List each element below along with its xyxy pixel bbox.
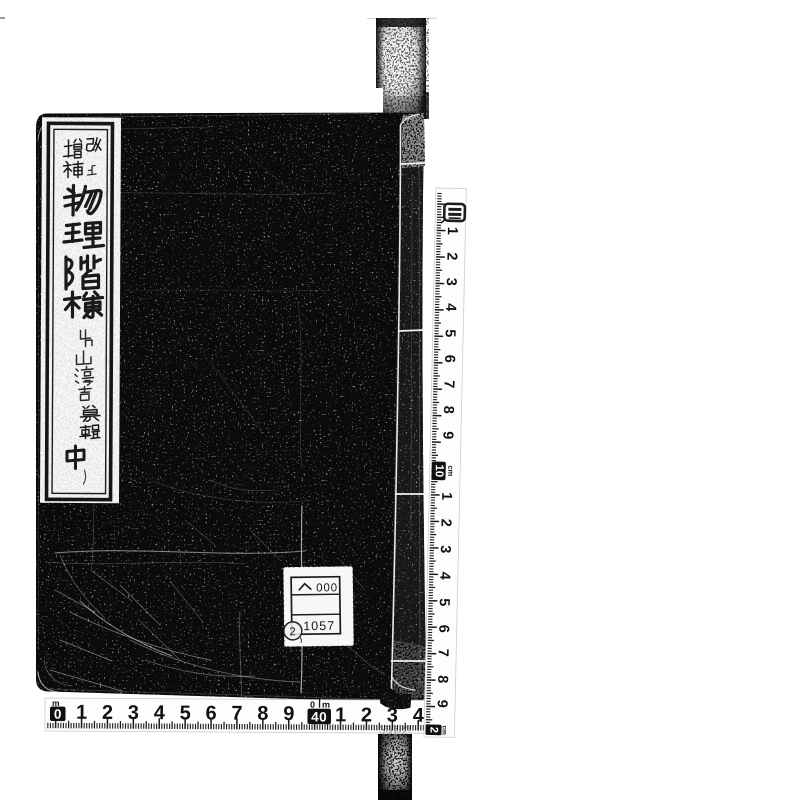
svg-text:8: 8 — [440, 406, 456, 414]
svg-text:1: 1 — [76, 702, 87, 724]
svg-text:9: 9 — [434, 700, 450, 708]
svg-text:4: 4 — [413, 705, 425, 727]
svg-text:6: 6 — [435, 625, 451, 633]
svg-text:5: 5 — [436, 598, 452, 606]
svg-text:2: 2 — [427, 727, 439, 733]
svg-text:7: 7 — [435, 649, 451, 657]
svg-text:7: 7 — [440, 380, 456, 388]
svg-text:2: 2 — [102, 702, 113, 724]
svg-text:1057: 1057 — [303, 619, 335, 633]
svg-text:3: 3 — [437, 545, 453, 553]
svg-text:40: 40 — [311, 709, 327, 724]
svg-text:1: 1 — [444, 227, 460, 235]
svg-text:3: 3 — [128, 702, 139, 724]
svg-text:cm: cm — [440, 726, 447, 736]
svg-text:cm: cm — [446, 465, 455, 476]
svg-text:m: m — [322, 700, 330, 710]
svg-text:000: 000 — [316, 582, 338, 594]
svg-text:4: 4 — [154, 702, 166, 724]
svg-text:9: 9 — [283, 703, 294, 725]
svg-text:9: 9 — [439, 431, 455, 439]
svg-text:0: 0 — [54, 707, 62, 722]
svg-text:4: 4 — [436, 572, 452, 580]
svg-text:4: 4 — [442, 303, 458, 311]
svg-text:10: 10 — [433, 464, 445, 477]
svg-text:0: 0 — [310, 700, 315, 710]
svg-text:1: 1 — [438, 492, 454, 500]
svg-text:2: 2 — [361, 704, 372, 726]
svg-text:8: 8 — [257, 703, 268, 725]
svg-text:3: 3 — [443, 278, 459, 286]
svg-text:2: 2 — [437, 519, 453, 527]
svg-text:6: 6 — [205, 702, 216, 724]
svg-text:7: 7 — [231, 703, 242, 725]
svg-text:2: 2 — [289, 626, 296, 638]
svg-text:2: 2 — [443, 252, 459, 260]
svg-text:6: 6 — [441, 355, 457, 363]
svg-text:5: 5 — [180, 702, 191, 724]
svg-text:5: 5 — [442, 329, 458, 337]
svg-text:1: 1 — [335, 704, 346, 726]
svg-text:8: 8 — [434, 675, 450, 683]
